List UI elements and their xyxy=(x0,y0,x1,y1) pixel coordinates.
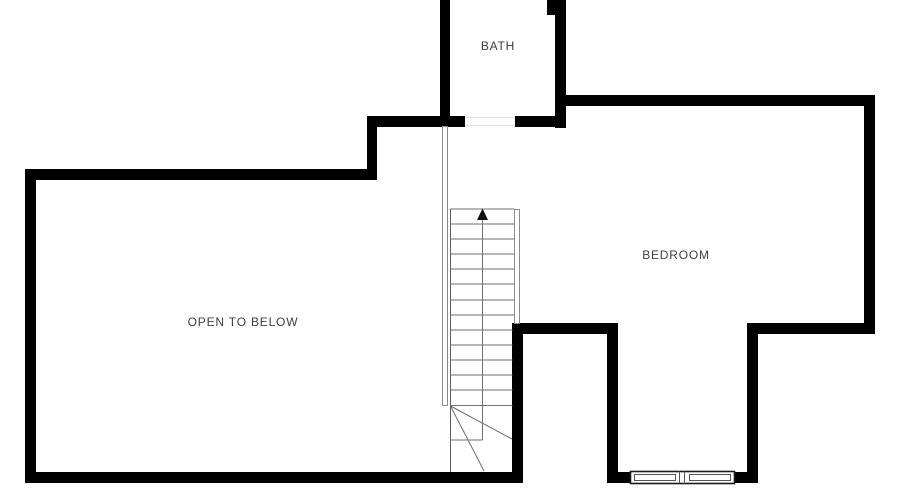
bath-wall-notch xyxy=(547,0,557,15)
bath-bottom-wall-right xyxy=(515,116,566,127)
stair-winder-lines xyxy=(451,406,513,471)
bath-door-opening xyxy=(465,116,515,127)
stair-left-thin-wall xyxy=(443,127,448,406)
stairwell-right-wall xyxy=(512,323,523,483)
bedroom-right-wall xyxy=(864,95,875,334)
open-to-below-bottom-wall xyxy=(25,472,523,483)
open-to-below-left-wall xyxy=(25,169,36,483)
dormer-right-wall xyxy=(747,323,758,483)
open-to-below-top-wall xyxy=(25,169,377,180)
window-frame xyxy=(631,472,735,484)
bath-bottom-wall-left xyxy=(367,116,465,127)
room-label-open-to-below: OPEN TO BELOW xyxy=(188,315,299,329)
dormer-left-wall xyxy=(607,323,618,483)
floor-plan: BATH BEDROOM OPEN TO BELOW xyxy=(0,0,900,500)
bedroom-bottom-left-wall xyxy=(512,323,618,334)
bedroom-bottom-right-wall xyxy=(747,323,875,334)
bath-right-wall xyxy=(555,0,566,128)
window xyxy=(631,472,735,484)
floor-plan-drawing xyxy=(0,0,900,500)
bath-left-wall xyxy=(440,0,450,127)
staircase xyxy=(443,127,520,473)
dormer-bottom-wall-left xyxy=(607,472,631,483)
stairs-up-arrow-icon xyxy=(477,209,488,221)
room-label-bedroom: BEDROOM xyxy=(642,248,710,262)
stair-right-thin-wall xyxy=(515,210,520,324)
room-label-bath: BATH xyxy=(481,39,515,53)
bedroom-top-wall xyxy=(555,95,875,106)
